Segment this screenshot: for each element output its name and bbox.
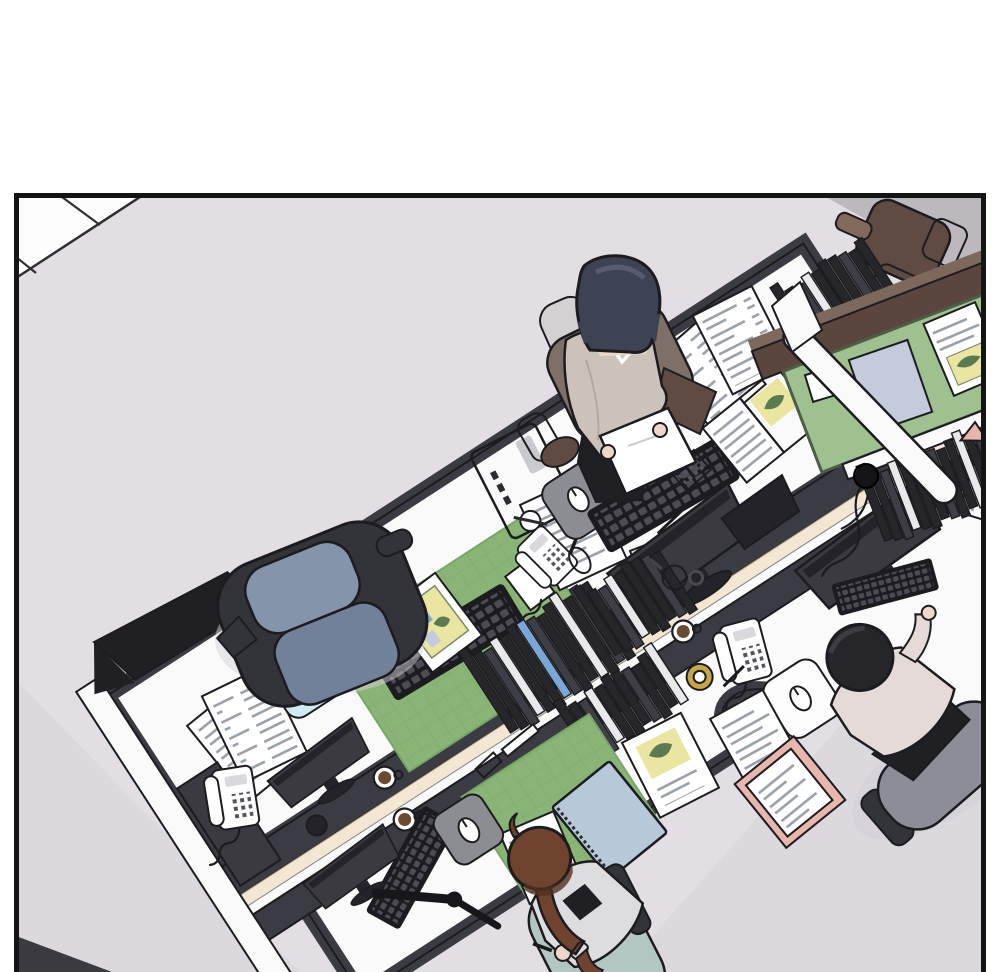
hand <box>653 423 667 437</box>
hand <box>601 445 615 459</box>
comic-panel-page <box>0 0 1000 972</box>
office-scene-illustration <box>0 0 1000 972</box>
binder-spine <box>993 426 1000 496</box>
desk-mic-knob[interactable] <box>854 464 878 488</box>
